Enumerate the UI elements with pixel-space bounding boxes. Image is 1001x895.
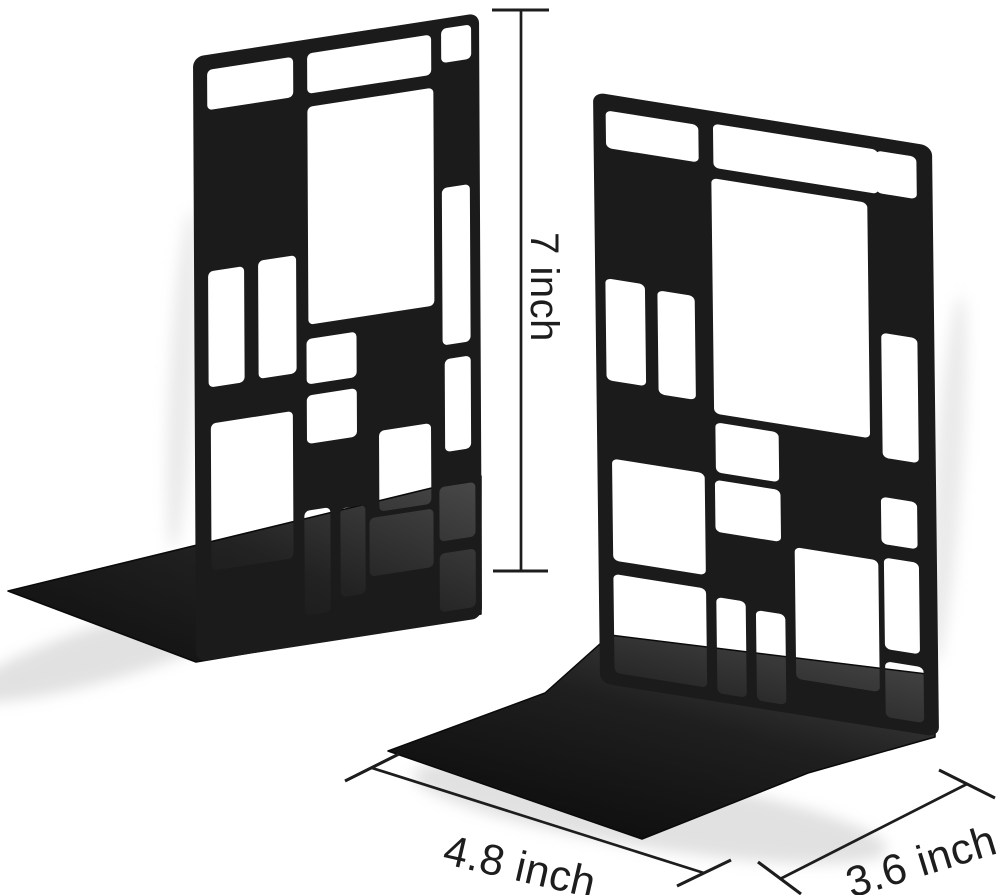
- left-bookend: [8, 13, 482, 662]
- width-dimension-label: 4.8 inch: [439, 826, 600, 895]
- left-bookend-panel: [193, 13, 482, 662]
- right-bookend-panel: [593, 92, 939, 737]
- product-image: 7 inch 4.8 inch 3.6 inch: [0, 0, 1001, 895]
- width-dimension-tick-left: [345, 754, 399, 781]
- height-dimension: 7 inch: [492, 10, 566, 571]
- depth-dimension-label: 3.6 inch: [840, 816, 1001, 895]
- height-dimension-label: 7 inch: [522, 232, 566, 342]
- width-dimension-tick-right: [677, 860, 731, 886]
- bookends-dimension-illustration: 7 inch 4.8 inch 3.6 inch: [0, 0, 1001, 895]
